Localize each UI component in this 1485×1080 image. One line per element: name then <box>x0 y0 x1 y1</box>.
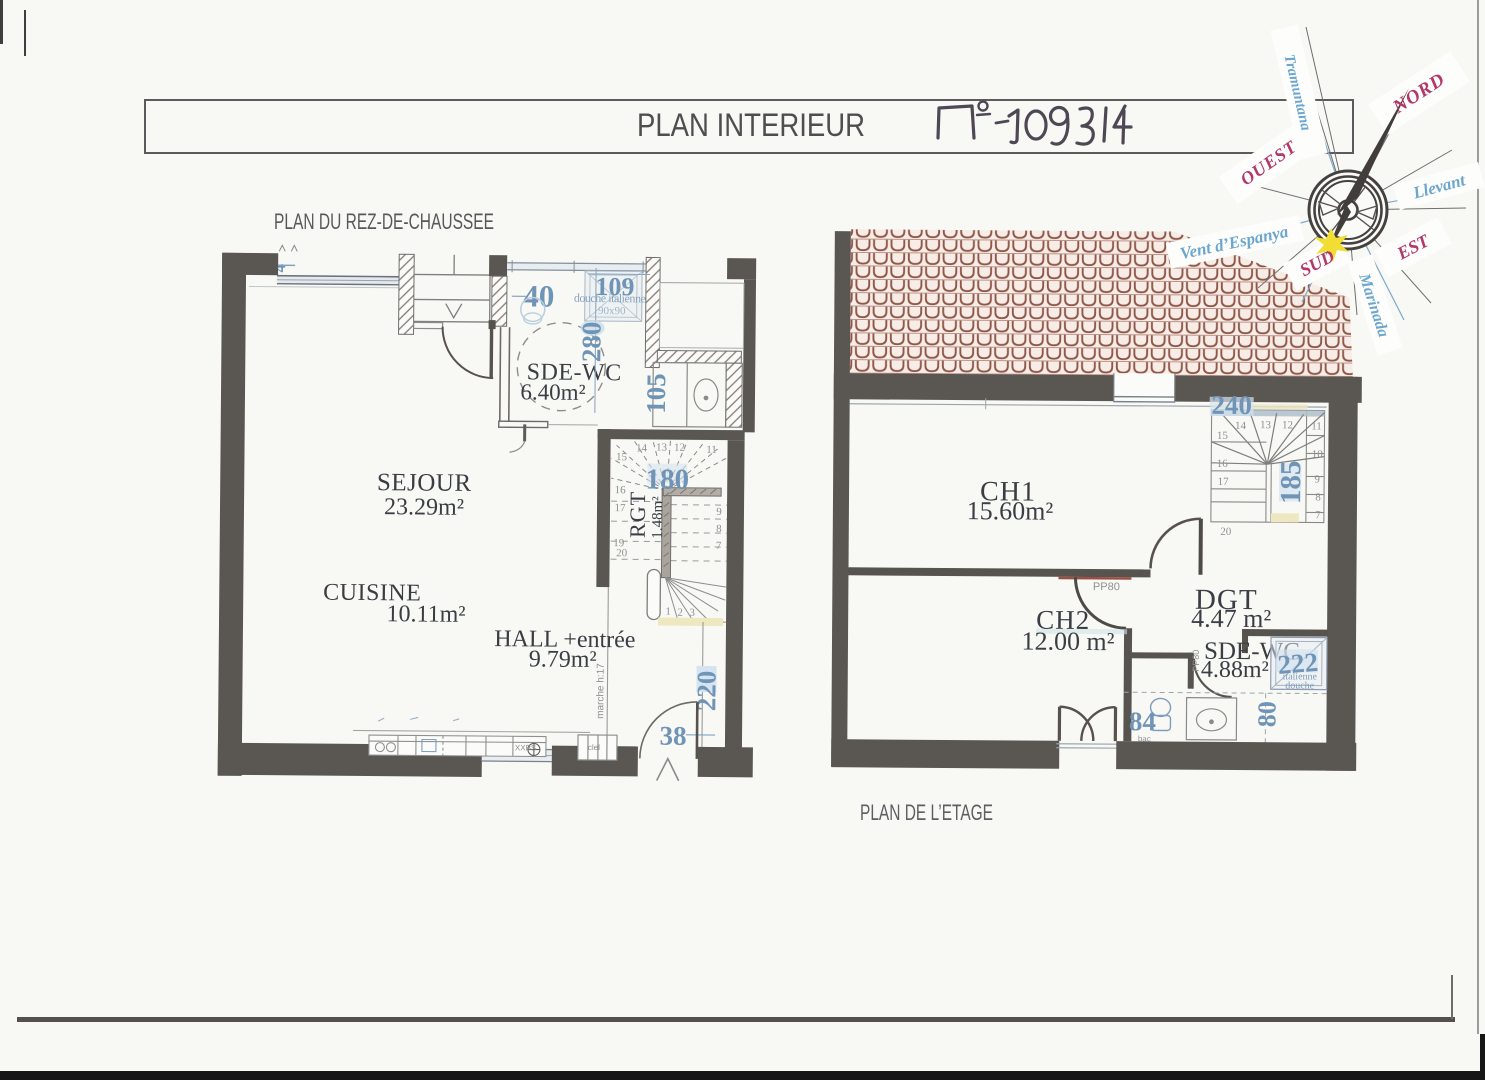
svg-text:40: 40 <box>523 278 554 313</box>
svg-text:23.29m²: 23.29m² <box>384 494 464 521</box>
svg-text:90x90: 90x90 <box>598 305 626 317</box>
svg-text:14: 14 <box>636 442 648 454</box>
svg-text:185: 185 <box>1275 461 1307 505</box>
svg-text:38: 38 <box>659 721 686 751</box>
svg-text:7: 7 <box>716 540 722 552</box>
svg-text:PLAN DU REZ-DE-CHAUSSEE: PLAN DU REZ-DE-CHAUSSEE <box>274 209 494 234</box>
svg-text:15: 15 <box>1217 430 1229 442</box>
svg-text:8: 8 <box>716 523 722 535</box>
svg-text:7: 7 <box>1315 510 1321 522</box>
svg-text:marche h:17: marche h:17 <box>595 663 606 719</box>
svg-text:1: 1 <box>665 606 671 618</box>
svg-text:6.40m²: 6.40m² <box>520 379 585 405</box>
svg-text:12.00 m²: 12.00 m² <box>1021 626 1114 656</box>
svg-text:1.48m²: 1.48m² <box>650 496 666 539</box>
svg-text:240: 240 <box>1211 390 1252 420</box>
svg-text:12: 12 <box>674 442 685 454</box>
svg-text:PP80: PP80 <box>1191 650 1201 672</box>
svg-text:16: 16 <box>1217 458 1229 470</box>
svg-text:14: 14 <box>1235 420 1247 432</box>
svg-text:10.11m²: 10.11m² <box>386 601 465 628</box>
svg-text:4.47 m²: 4.47 m² <box>1191 604 1271 634</box>
svg-text:20: 20 <box>1220 526 1232 538</box>
svg-text:SEJOUR: SEJOUR <box>377 469 472 497</box>
svg-text:PLAN DE L’ETAGE: PLAN DE L’ETAGE <box>860 800 993 825</box>
svg-text:XXBS: XXBS <box>515 743 536 752</box>
svg-text:20: 20 <box>616 547 628 559</box>
svg-text:105: 105 <box>641 373 671 414</box>
svg-text:13: 13 <box>1260 419 1272 431</box>
svg-text:80: 80 <box>1252 701 1281 727</box>
svg-text:PP80: PP80 <box>1093 581 1120 593</box>
svg-text:84: 84 <box>1129 706 1156 736</box>
svg-text:RGT: RGT <box>625 491 650 538</box>
svg-text:15: 15 <box>616 451 628 463</box>
svg-text:222: 222 <box>1276 647 1319 680</box>
svg-text:8: 8 <box>1315 492 1321 504</box>
svg-text:PLAN INTERIEUR: PLAN INTERIEUR <box>637 107 865 143</box>
svg-text:9: 9 <box>1314 474 1320 486</box>
svg-text:13: 13 <box>656 442 668 454</box>
svg-text:douche: douche <box>1285 680 1315 691</box>
svg-text:12: 12 <box>1282 419 1293 431</box>
svg-text:9.79m²: 9.79m² <box>529 646 597 673</box>
svg-text:9: 9 <box>716 506 722 518</box>
svg-text:4.88m²: 4.88m² <box>1201 657 1269 683</box>
svg-text:109: 109 <box>595 272 634 301</box>
svg-text:220: 220 <box>691 671 721 712</box>
svg-text:11: 11 <box>1311 421 1322 433</box>
svg-text:280: 280 <box>576 322 606 363</box>
svg-text:17: 17 <box>1218 476 1230 488</box>
svg-text:15.60m²: 15.60m² <box>967 496 1054 526</box>
svg-text:3: 3 <box>689 607 695 619</box>
svg-text:10: 10 <box>1312 449 1324 461</box>
svg-text:11: 11 <box>706 444 717 456</box>
svg-text:clel: clel <box>588 743 600 752</box>
svg-text:2: 2 <box>677 607 683 619</box>
svg-text:180: 180 <box>645 463 689 495</box>
